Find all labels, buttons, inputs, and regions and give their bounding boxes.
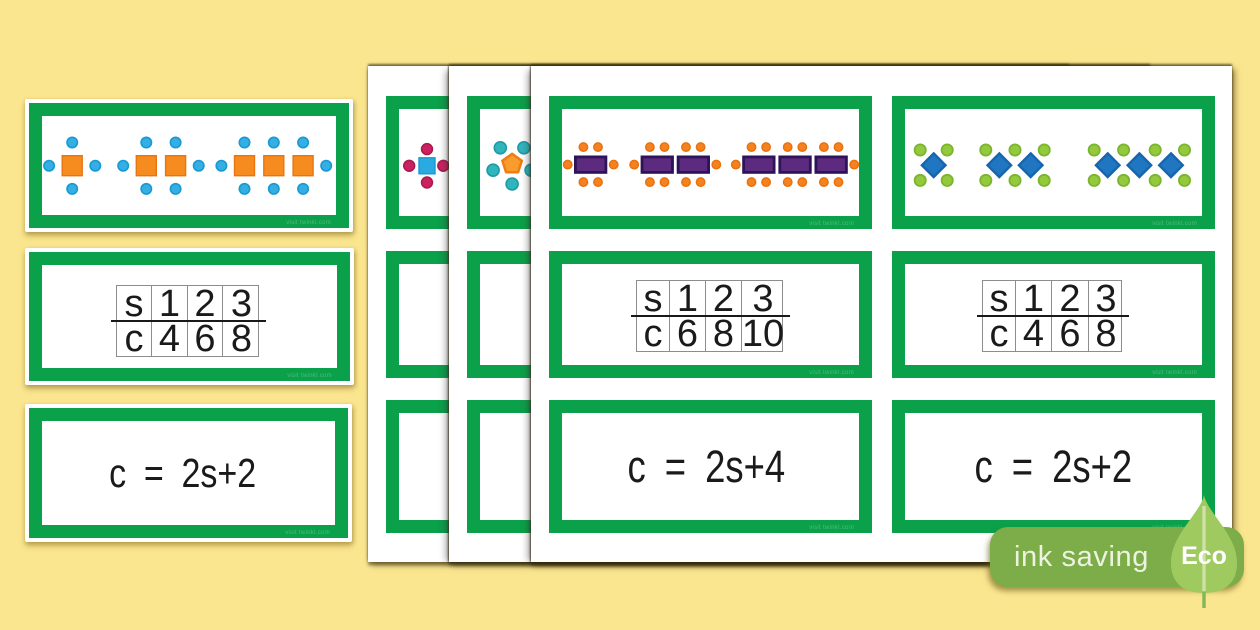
svg-text:Eco: Eco: [1181, 542, 1227, 570]
